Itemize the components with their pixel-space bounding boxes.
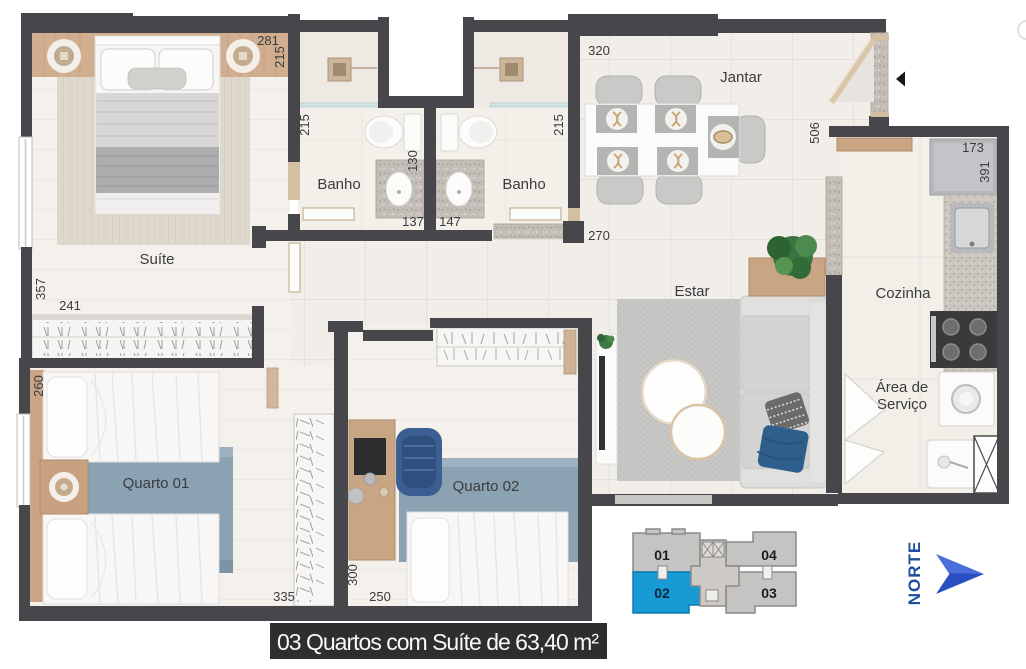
svg-text:04: 04 [761, 547, 777, 563]
svg-text:Quarto 01: Quarto 01 [123, 475, 190, 492]
svg-text:NORTE: NORTE [905, 541, 924, 606]
svg-text:250: 250 [369, 589, 391, 604]
svg-text:Área de: Área de [876, 379, 929, 396]
svg-text:215: 215 [272, 46, 287, 68]
svg-text:357: 357 [33, 278, 48, 300]
svg-text:Banho: Banho [317, 176, 360, 193]
svg-text:281: 281 [257, 33, 279, 48]
svg-text:Quarto 02: Quarto 02 [453, 478, 520, 495]
svg-text:Banho: Banho [502, 176, 545, 193]
svg-text:Suíte: Suíte [139, 251, 174, 268]
svg-text:215: 215 [551, 114, 566, 136]
svg-text:300: 300 [345, 564, 360, 586]
svg-text:03 Quartos com Suíte de 63,40: 03 Quartos com Suíte de 63,40 m² [277, 629, 599, 655]
svg-text:03: 03 [761, 585, 777, 601]
svg-text:02: 02 [654, 585, 670, 601]
svg-text:506: 506 [807, 122, 822, 144]
svg-text:137: 137 [402, 214, 424, 229]
svg-text:270: 270 [588, 228, 610, 243]
svg-text:Serviço: Serviço [877, 396, 927, 413]
svg-text:215: 215 [297, 114, 312, 136]
svg-text:173: 173 [962, 140, 984, 155]
svg-text:391: 391 [977, 161, 992, 183]
svg-text:147: 147 [439, 214, 461, 229]
svg-text:130: 130 [405, 150, 420, 172]
svg-text:260: 260 [31, 375, 46, 397]
svg-text:01: 01 [654, 547, 670, 563]
svg-text:320: 320 [588, 43, 610, 58]
svg-text:335: 335 [273, 589, 295, 604]
svg-text:Estar: Estar [674, 283, 709, 300]
svg-text:Cozinha: Cozinha [875, 285, 931, 302]
svg-text:Jantar: Jantar [720, 69, 762, 86]
svg-text:241: 241 [59, 298, 81, 313]
